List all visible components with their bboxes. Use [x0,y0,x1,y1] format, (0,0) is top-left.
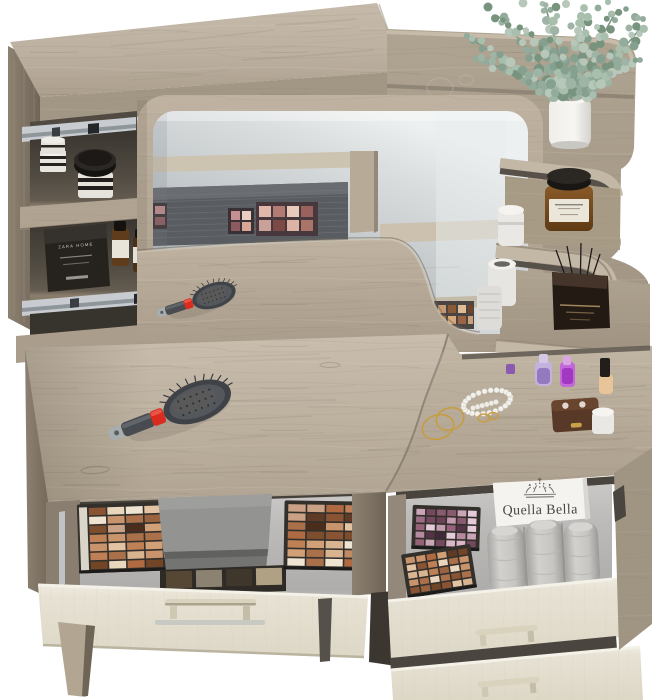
svg-text:Quella Bella: Quella Bella [502,502,578,518]
